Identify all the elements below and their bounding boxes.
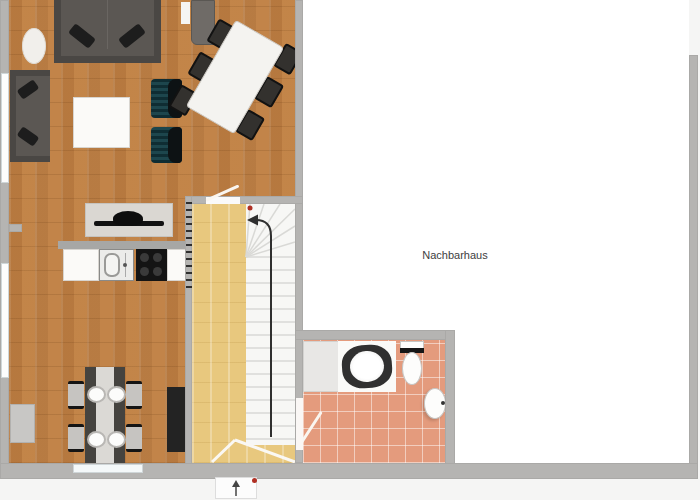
dining-chair [68, 424, 84, 452]
window-left-2 [1, 263, 9, 378]
entrance-marker-dot [252, 478, 257, 483]
entrance-arrow-icon [216, 478, 256, 498]
partition-wall [295, 0, 303, 463]
bathroom-door-opening [296, 398, 303, 450]
neighbor-house-label: Nachbarhaus [380, 249, 530, 261]
sofa-seat-split [107, 0, 108, 49]
cabinet-gray [10, 404, 35, 443]
sofa-left [10, 70, 50, 162]
stair-top-marker-dot [248, 206, 253, 211]
wall-segment-white [181, 2, 190, 24]
sink-faucet-dot [123, 263, 127, 267]
kitchen-cabinet-right [167, 249, 187, 281]
kitchen-island [85, 203, 173, 237]
armchair-seat [168, 127, 182, 163]
cabinet-black [167, 387, 186, 452]
cooktop [136, 249, 167, 281]
place-setting [107, 386, 126, 403]
window-left-1 [1, 73, 9, 183]
bathroom-right-wall [445, 330, 455, 478]
floor-plan: Nachbarhaus [0, 0, 700, 500]
sofa-pillow [68, 23, 96, 48]
coffee-table [73, 97, 130, 148]
sofa-pillow [17, 126, 40, 146]
left-wall-stub [9, 224, 22, 232]
dining-table-bottom [85, 367, 125, 463]
burner [153, 253, 162, 262]
sofa-pillow [118, 23, 146, 48]
dining-chair [126, 424, 142, 452]
armchair-2 [151, 127, 182, 163]
kitchen-cabinet-left [63, 249, 99, 281]
burner [140, 253, 149, 262]
burner [153, 267, 162, 276]
right-wall [689, 55, 698, 479]
side-table-oval [22, 28, 46, 64]
dining-chair [68, 381, 84, 409]
burner [140, 267, 149, 276]
kitchen-counter-wall [58, 241, 187, 249]
dining-chair [126, 381, 142, 409]
stair-top-wall [185, 196, 303, 204]
window-bottom [73, 464, 143, 473]
left-wall [0, 0, 9, 479]
place-setting [87, 431, 106, 448]
sink-basin [104, 253, 120, 277]
toilet-bowl [402, 352, 422, 385]
kitchen-sink-unit [99, 249, 134, 281]
radiator-ticks [186, 200, 192, 288]
extractor-hood-dome [113, 211, 143, 226]
sofa-top [54, 0, 161, 63]
sofa-pillow [17, 79, 40, 99]
place-setting [107, 431, 126, 448]
place-setting [87, 386, 106, 403]
staircase [192, 204, 303, 463]
shower-area [303, 341, 341, 392]
bathroom-top-wall [295, 330, 455, 340]
entrance-door [215, 477, 257, 499]
